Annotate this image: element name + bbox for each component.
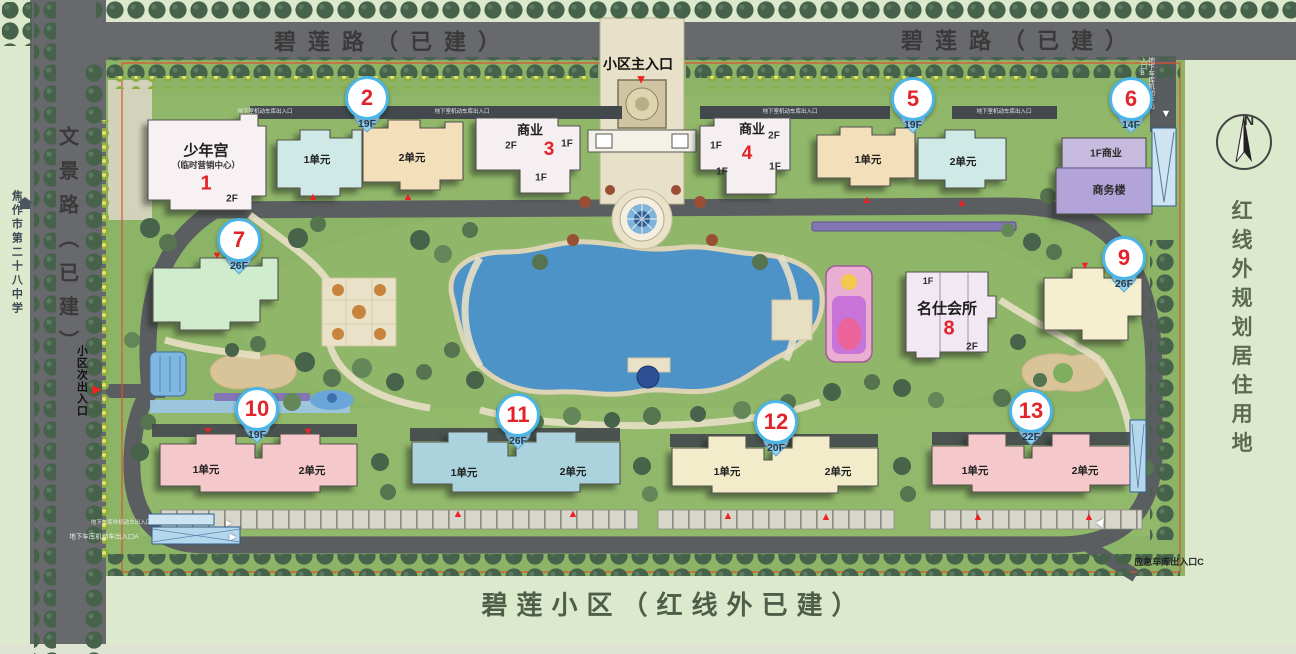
entrance-arrow: ▲: [957, 197, 968, 209]
compass: N: [1214, 112, 1284, 128]
pin-number: 5: [907, 88, 919, 110]
building-12-unit2-label: 2单元: [825, 466, 852, 478]
garage-lane-label-1: 地下室机动车库出入口: [237, 109, 292, 115]
pin-circle: 11: [496, 393, 540, 437]
marker-pin-6: 6 14F: [1109, 77, 1153, 143]
building-4-name: 商业: [739, 123, 765, 138]
pin-number: 13: [1019, 400, 1043, 422]
building-10-unit2-label: 2单元: [299, 465, 326, 477]
pin-circle: 2: [345, 76, 389, 120]
building-6-name: 商务楼: [1093, 185, 1126, 198]
pin-number: 2: [361, 87, 373, 109]
garage-nonmotor-label: 地下车库非机动车出入口: [91, 520, 152, 526]
building-6-retail-label: 1F商业: [1090, 148, 1122, 160]
entrance-arrow: ▼: [1080, 260, 1091, 272]
emergency-exit-label: 应急车库出入口C: [1134, 557, 1204, 567]
road-label-bilian-east: 碧莲路（已建）: [901, 28, 1139, 53]
building-1-number: 1: [200, 173, 211, 196]
pin-circle: 7: [217, 218, 261, 262]
marker-pin-2: 2 19F: [345, 76, 389, 142]
garage-lane-label-2: 地下室机动车库出入口: [434, 109, 489, 115]
pin-circle: 12: [754, 400, 798, 444]
entrance-arrow: ▲: [403, 191, 414, 203]
pin-circle: 10: [235, 387, 279, 431]
compass-icon: [1214, 112, 1274, 172]
pin-number: 6: [1125, 88, 1137, 110]
building-3-floor-right: 1F: [561, 138, 573, 150]
building-1-name: 少年宫: [183, 142, 228, 159]
garage-b-arrow: ▼: [1161, 108, 1172, 120]
marker-pin-11: 11 26F: [496, 393, 540, 459]
entrance-arrow: ▲: [723, 510, 734, 522]
main-entrance-arrow: ▼: [635, 72, 648, 87]
entrance-arrow: ▲: [1084, 511, 1095, 523]
marker-pin-5: 5 19F: [891, 77, 935, 143]
building-4-floor-low: 1F: [716, 166, 728, 178]
building-4-number: 4: [742, 143, 753, 165]
pin-circle: 9: [1102, 236, 1146, 280]
building-13-unit2-label: 2单元: [1072, 465, 1099, 477]
pin-floor-label: 20F: [767, 442, 785, 454]
sand-playground-west: [210, 354, 297, 390]
pin-number: 7: [233, 229, 245, 251]
marker-pin-12: 12 20F: [754, 400, 798, 466]
building-1-subtitle: （临时营销中心）: [172, 161, 240, 171]
pin-circle: 5: [891, 77, 935, 121]
pin-floor-label: 26F: [509, 435, 527, 447]
entrance-arrow: ▼: [303, 426, 314, 438]
main-entrance-label: 小区主入口: [603, 56, 673, 72]
building-12-unit1-label: 1单元: [714, 466, 741, 478]
garage-nonmotor-arrow: ▶: [226, 519, 232, 528]
entrance-arrow: ▲: [973, 511, 984, 523]
building-4-floor-right: 2F: [768, 130, 780, 142]
pin-number: 11: [506, 404, 529, 426]
play-structure: [826, 266, 872, 362]
building-13-unit1-label: 1单元: [962, 465, 989, 477]
road-label-wenjing: 文景路（已建）: [55, 126, 78, 364]
pin-floor-label: 26F: [1115, 278, 1133, 290]
building-3-name: 商业: [517, 124, 543, 139]
marker-pin-9: 9 26F: [1102, 236, 1146, 302]
pin-floor-label: 19F: [904, 119, 922, 131]
building-10-unit1-label: 1单元: [193, 464, 220, 476]
pergola-north: [812, 222, 1016, 231]
building-5-unit2-label: 2单元: [950, 156, 977, 168]
entrance-arrow: ▲: [821, 511, 832, 523]
pin-floor-label: 19F: [248, 429, 266, 441]
marker-pin-13: 13 22F: [1009, 389, 1053, 455]
garage-a-arrow: ▶: [230, 532, 237, 543]
building-8-number: 8: [943, 318, 954, 341]
building-8-name: 名仕会所: [917, 300, 977, 317]
building-5-unit1-label: 1单元: [855, 154, 882, 166]
pin-floor-label: 14F: [1122, 119, 1140, 131]
marker-pin-10: 10 19F: [235, 387, 279, 453]
pin-number: 9: [1118, 247, 1130, 269]
building-2-unit2-label: 2单元: [399, 152, 426, 164]
building-3-floor-left: 2F: [505, 140, 517, 152]
garage-lane-label-3: 地下室机动车库出入口: [762, 109, 817, 115]
pin-number: 10: [245, 398, 269, 420]
right-zone-label: 红线外规划居住用地: [1228, 200, 1252, 461]
pin-floor-label: 19F: [358, 118, 376, 130]
building-4-floor-left: 1F: [710, 140, 722, 152]
entrance-arrow: ▲: [862, 194, 873, 206]
building-2-unit1-label: 1单元: [304, 154, 331, 166]
garage-lane-label-4: 地下室机动车库出入口: [976, 109, 1031, 115]
pin-number: 12: [764, 411, 788, 433]
building-3-floor-low: 1F: [535, 172, 547, 184]
marker-pin-7: 7 26F: [217, 218, 261, 284]
road-label-bilian-west: 碧莲路（已建）: [274, 29, 512, 54]
garage-a-label: 地下车库机动车出入口A: [69, 533, 138, 540]
pin-circle: 6: [1109, 77, 1153, 121]
bottom-title: 碧莲小区（红线外已建）: [481, 591, 866, 621]
building-8-floor-low: 2F: [966, 341, 978, 353]
entrance-arrow: ▲: [568, 508, 579, 520]
building-11-unit2-label: 2单元: [560, 466, 587, 478]
pin-floor-label: 22F: [1022, 431, 1040, 443]
entrance-arrow: ▼: [203, 425, 214, 437]
building-4-floor-mid: 1F: [769, 161, 781, 173]
pin-circle: 13: [1009, 389, 1053, 433]
secondary-entrance-label: 小区次出入口: [75, 345, 88, 417]
pin-floor-label: 26F: [230, 260, 248, 272]
site-plan: 碧莲路（已建） 碧莲路（已建） 文景路（已建） 红线外规划居住用地 碧莲小区（红…: [0, 0, 1296, 654]
secondary-entrance-arrow: ▶: [92, 382, 101, 396]
lake-gazebo: [637, 366, 659, 388]
building-3-number: 3: [544, 139, 555, 161]
building-1-floor: 2F: [226, 193, 238, 205]
site-plan-art: [0, 0, 1296, 654]
entrance-arrow: ▲: [308, 191, 319, 203]
building-11-unit1-label: 1单元: [451, 467, 478, 479]
entrance-arrow: ▲: [453, 508, 464, 520]
building-8-floor-top: 1F: [923, 276, 934, 286]
fountain: [612, 189, 672, 249]
